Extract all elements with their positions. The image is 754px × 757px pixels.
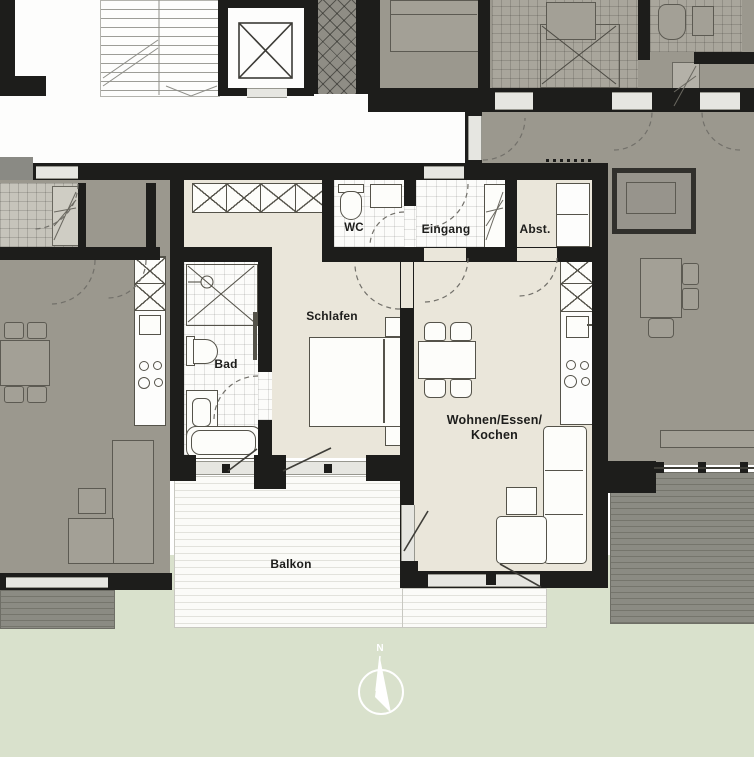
sofa-back [543, 426, 587, 564]
stove-burner [566, 360, 576, 370]
threshold-dots [553, 159, 556, 162]
railing-post [740, 462, 748, 473]
entry-door-sill-main [424, 166, 464, 179]
bathtub-inner [191, 430, 256, 455]
corridor-stub-left [0, 157, 33, 180]
wardrobe [192, 183, 330, 211]
floor-plan: WC Eingang Abst. Schlafen Bad Wohnen/Ess… [0, 0, 754, 757]
bad-washbasin-bowl [192, 398, 211, 427]
abst-shelf-divider [556, 214, 588, 215]
wall-south-block [254, 455, 286, 489]
wall-apt-right-top-left [368, 0, 380, 90]
dining-chair [424, 379, 446, 398]
wall-south-block [366, 455, 414, 481]
wall-stair-stub [0, 76, 46, 96]
stove-burner [153, 361, 162, 370]
threshold-dots [588, 159, 591, 162]
window-post [222, 464, 230, 473]
neighbor-left-chair [27, 322, 47, 339]
wc-toilet [340, 191, 362, 220]
wall-bad-east [258, 255, 272, 460]
neighbor-left-balcony [0, 590, 115, 629]
railing-post [698, 462, 706, 473]
dining-chair [450, 322, 472, 341]
wall-bath-wc-divider [638, 0, 650, 60]
wc-label: WC [332, 221, 376, 235]
sofa-cushion-line [545, 514, 583, 515]
neighbor-chair [682, 288, 699, 310]
vent-shaft [318, 0, 356, 94]
bad-shelf [253, 312, 257, 360]
bad-label: Bad [200, 357, 252, 371]
sofa-seat [496, 516, 547, 564]
dining-table [418, 341, 476, 379]
eingang-label: Eingang [406, 222, 486, 236]
wc-washbasin [370, 184, 402, 208]
stairs [100, 0, 220, 97]
neighbor-bed [390, 0, 480, 52]
wall-main-top [33, 163, 608, 180]
wall-eingang-east [505, 166, 517, 258]
neighbor-storage-inner [626, 182, 676, 214]
stove-burner [564, 375, 577, 388]
neighbor-left-cabinet [134, 283, 166, 311]
threshold-dots [574, 159, 577, 162]
wall-wc-south [694, 52, 754, 64]
neighbor-left-coffee-table [78, 488, 106, 514]
neighbor-toilet [658, 4, 686, 40]
neighbor-left-table [0, 340, 50, 386]
bed [309, 337, 405, 427]
neighbor-left-chair [4, 322, 24, 339]
neighbor-dining-table [640, 258, 682, 318]
wall-bad-north [170, 247, 272, 262]
window-post [324, 464, 332, 473]
wall-nleft-entry-div [78, 183, 86, 249]
neighbor-bed-pillow-line [391, 14, 477, 15]
wall-corner-se [592, 461, 656, 493]
wohnen-label-line1: Wohnen/Essen/ [447, 413, 542, 427]
threshold-dots [560, 159, 563, 162]
stove-burner [139, 361, 149, 371]
bad-door-opening [258, 372, 272, 420]
dining-chair [424, 322, 446, 341]
wall-south-block [170, 455, 196, 481]
stove-burner [580, 361, 589, 370]
window-mullion [486, 574, 496, 585]
neighbor-right-balcony [610, 472, 754, 624]
neighbor-left-sofa-seat [68, 518, 114, 564]
wall-bed-bath-divider [478, 0, 490, 90]
neighbor-sink-small [692, 6, 714, 36]
wall-living-sw-stub [400, 561, 418, 588]
door-sill [612, 92, 652, 110]
balkon-label: Balkon [251, 557, 331, 571]
door-sill [700, 92, 740, 110]
door-sill [468, 116, 482, 160]
stove-burner [138, 377, 150, 389]
railing-post [656, 462, 664, 473]
neighbor-washbasin [546, 2, 596, 40]
neighbor-chair [682, 263, 699, 285]
stove-burner [581, 377, 590, 386]
schlafen-door-opening [401, 262, 413, 308]
neighbor-left-sofa-back [112, 440, 154, 564]
shower [186, 264, 258, 326]
nleft-window-sill [6, 577, 108, 588]
wall-neighbor-top-south [368, 88, 754, 112]
kitchen-tall-cabinet [560, 283, 595, 312]
stove-burner [154, 378, 163, 387]
wohnen-label: Wohnen/Essen/ Kochen [437, 413, 552, 443]
threshold-dots [546, 159, 549, 162]
neighbor-sofa-row [660, 430, 754, 448]
balcony-door-opening-living [401, 505, 415, 563]
living-window-sill [428, 574, 540, 587]
threshold-dots [581, 159, 584, 162]
wall-nleft-entry-east [146, 183, 156, 249]
entry-door-sill-left-apartment [36, 166, 78, 179]
neighbor-left-cabinet [134, 257, 166, 285]
eingang-coat-rack [484, 184, 507, 248]
threshold-dots [567, 159, 570, 162]
bed-pillow-line [383, 339, 385, 423]
abst-shelf [556, 183, 590, 247]
wohnen-label-line2: Kochen [471, 428, 518, 442]
dining-chair [450, 379, 472, 398]
neighbor-left-chair [27, 386, 47, 403]
kitchen-sink [566, 316, 589, 338]
sofa-cushion-line [545, 470, 583, 471]
coffee-table [506, 487, 537, 515]
wall-wc-west [322, 163, 334, 259]
schlafen-label: Schlafen [286, 309, 378, 323]
neighbor-left-sink [139, 315, 161, 335]
compass-north-label: N [370, 643, 390, 654]
elevator-door-sill [247, 88, 287, 98]
balkon-deck-lower [402, 588, 547, 628]
eingang-hall-opening [424, 248, 466, 261]
neighbor-left-chair [4, 386, 24, 403]
balkon-deck [174, 476, 404, 628]
door-sill [495, 92, 533, 110]
abst-hall-opening [517, 248, 557, 261]
elevator-car-area [228, 8, 304, 88]
shaft-wall-right [356, 0, 368, 94]
neighbor-left-coat-rack [52, 186, 80, 246]
wall-main-left [170, 163, 184, 463]
wall-main-right [592, 163, 608, 575]
abst-label: Abst. [512, 222, 558, 236]
neighbor-armchair [648, 318, 674, 338]
